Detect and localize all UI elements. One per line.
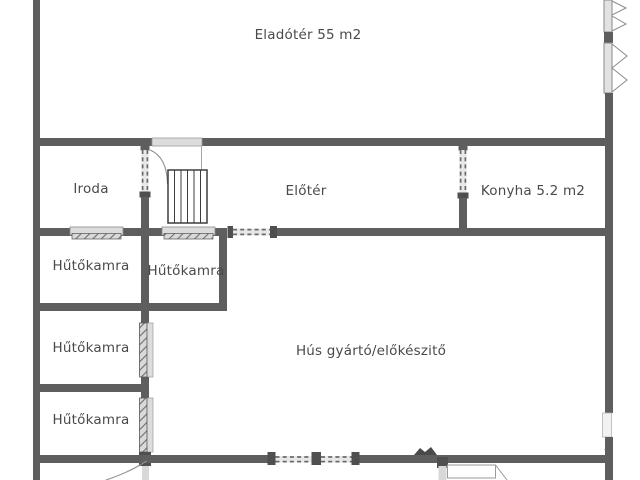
room-label-hutokamra-b: Hűtőkamra	[148, 263, 225, 279]
door-mark-bottom	[414, 447, 437, 455]
door-konyha	[458, 146, 469, 199]
door-leaf-bottom	[448, 465, 508, 480]
room-label-iroda: Iroda	[73, 181, 108, 197]
wall-coldrooms-1	[33, 303, 227, 311]
room-label-hutokamra-c: Hűtőkamra	[53, 340, 130, 356]
wall-middle-right	[277, 228, 613, 236]
room-label-eloter: Előtér	[286, 183, 327, 199]
room-label-hutokamra-a: Hűtőkamra	[53, 258, 130, 274]
hatched-wall-2	[140, 398, 154, 452]
wall-bottom-left	[33, 455, 268, 463]
room-label-hus-gyarto: Hús gyártó/előkészitő	[296, 343, 446, 359]
floor-plan-drawing	[0, 0, 640, 480]
hatched-wall-1	[140, 323, 154, 377]
room-label-konyha: Konyha 5.2 m2	[481, 183, 585, 199]
window-right-top	[604, 0, 626, 32]
room-label-eladoter: Eladótér 55 m2	[255, 27, 362, 43]
door-eloter-hall	[228, 226, 278, 238]
window-right-second	[604, 43, 627, 93]
room-label-hutokamra-d: Hűtőkamra	[53, 412, 130, 428]
wall-konyha-divider	[459, 198, 467, 228]
wall-left	[33, 0, 40, 480]
window-hutokamra-b	[162, 227, 215, 239]
opening-stairs-top	[152, 138, 202, 146]
wall-eladoter-bottom	[33, 138, 605, 146]
floor-plan-canvas: Eladótér 55 m2 Iroda Előtér Konyha 5.2 m…	[0, 0, 640, 480]
frame-below-bottom	[439, 466, 447, 480]
door-bottom-double	[268, 452, 360, 465]
wall-right-pier	[604, 32, 613, 43]
wall-right-upper	[605, 93, 613, 413]
door-iroda	[140, 146, 168, 198]
wall-coldrooms-2	[33, 384, 149, 392]
wall-iroda-divider	[141, 197, 149, 228]
stairs	[168, 170, 207, 223]
wall-bottom-right	[360, 455, 614, 463]
frame-below-column	[142, 466, 149, 480]
window-hutokamra-a	[70, 227, 123, 239]
